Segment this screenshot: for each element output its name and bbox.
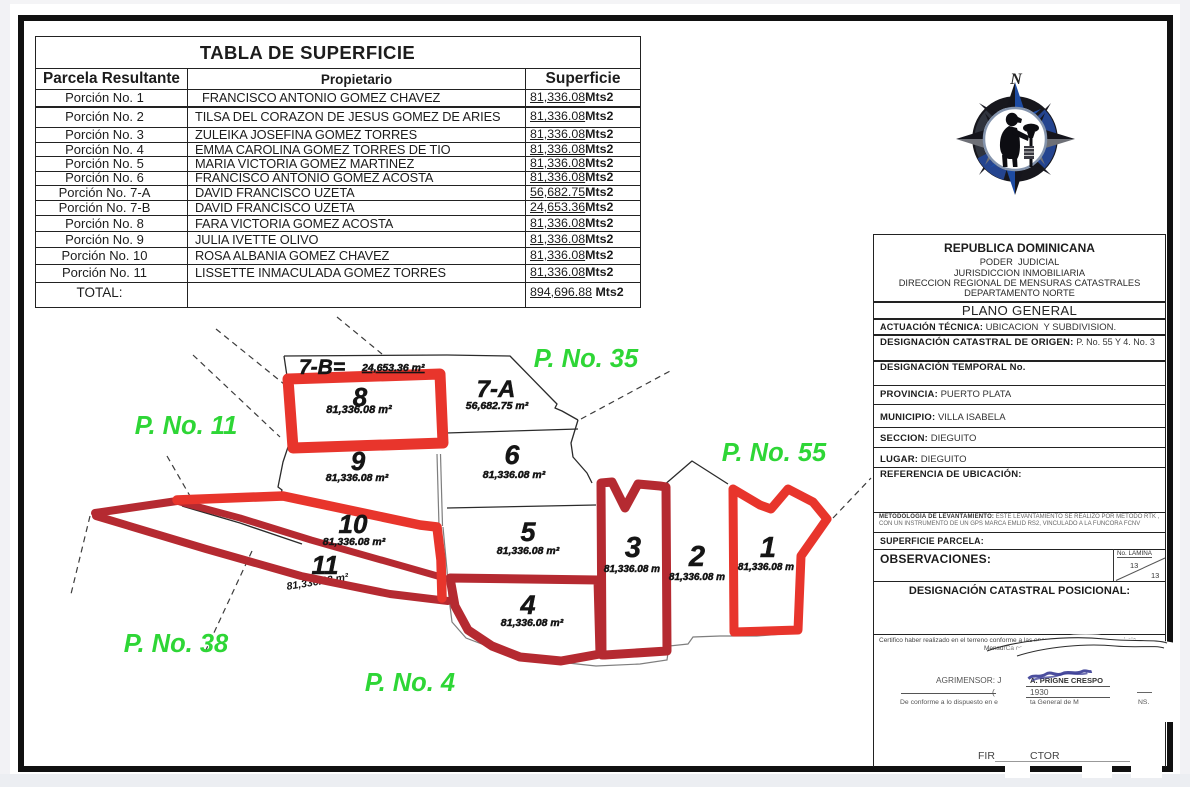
svg-text:81,336.08 m: 81,336.08 m	[669, 572, 725, 583]
svg-text:N: N	[1009, 71, 1023, 88]
svg-text:81,336.08 m²: 81,336.08 m²	[483, 469, 546, 481]
svg-text:7-B=: 7-B=	[299, 356, 345, 379]
svg-text:7-A: 7-A	[477, 376, 516, 403]
svg-text:P. No. 11: P. No. 11	[135, 412, 238, 440]
svg-text:4: 4	[519, 590, 535, 620]
svg-text:3: 3	[625, 532, 641, 564]
svg-text:81,336.08 m²: 81,336.08 m²	[326, 404, 392, 416]
svg-text:81,336.08 m²: 81,336.08 m²	[326, 472, 389, 484]
svg-text:5: 5	[520, 517, 536, 547]
svg-text:P. No. 55: P. No. 55	[722, 439, 827, 467]
svg-text:81,336.08 m: 81,336.08 m	[738, 562, 794, 573]
svg-text:56,682.75 m²: 56,682.75 m²	[466, 400, 529, 412]
svg-text:24,653.36 m²: 24,653.36 m²	[361, 362, 425, 374]
svg-text:81,336.08 m: 81,336.08 m	[604, 564, 660, 575]
svg-text:6: 6	[504, 440, 520, 470]
svg-text:81,336.08 m²: 81,336.08 m²	[501, 617, 564, 629]
svg-text:10: 10	[339, 509, 368, 539]
svg-text:81,336.08 m²: 81,336.08 m²	[497, 545, 560, 557]
svg-text:11: 11	[312, 550, 339, 580]
svg-text:P. No. 35: P. No. 35	[534, 345, 639, 373]
svg-text:81,336.08 m²: 81,336.08 m²	[323, 536, 386, 548]
svg-text:P. No. 38: P. No. 38	[124, 630, 229, 658]
svg-text:2: 2	[688, 541, 705, 573]
svg-text:1: 1	[760, 532, 776, 564]
svg-text:P. No. 4: P. No. 4	[365, 669, 455, 697]
